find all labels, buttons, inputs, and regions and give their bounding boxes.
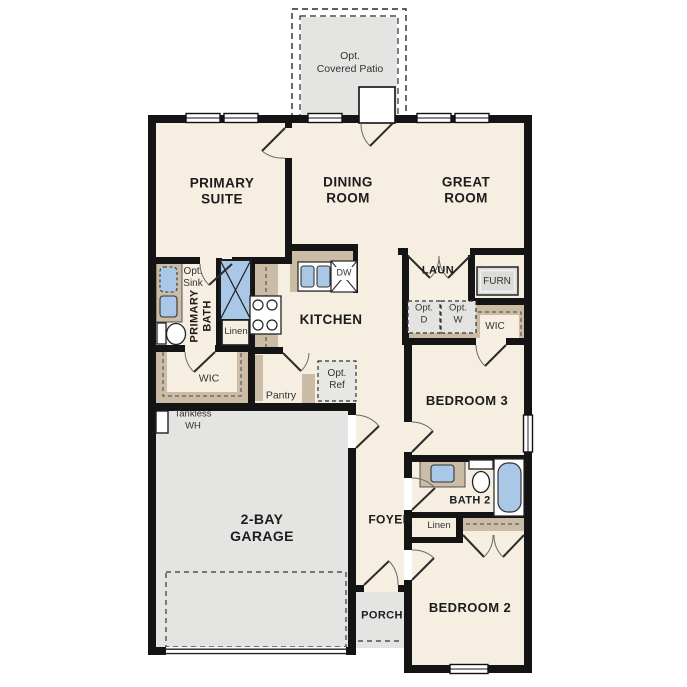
dishwasher xyxy=(331,261,357,292)
bath2-sink xyxy=(431,465,454,482)
bath2-tub xyxy=(494,459,524,516)
optional-dryer xyxy=(408,301,440,333)
floorplan-canvas: Opt. Covered Patio PRIMARY SUITE DINING … xyxy=(0,0,687,687)
tankless-water-heater xyxy=(156,411,168,433)
optional-refrigerator xyxy=(318,361,356,401)
primary-shower xyxy=(220,260,251,320)
furnace-box xyxy=(477,267,518,295)
patio-door-threshold xyxy=(359,87,395,123)
porch-area xyxy=(356,592,404,648)
optional-washer xyxy=(441,301,476,333)
primary-toilet xyxy=(157,323,186,345)
kitchen-sink xyxy=(298,262,331,291)
floorplan-drawing xyxy=(0,0,687,687)
primary-linen-closet xyxy=(222,320,249,345)
garage-door-opening xyxy=(166,647,346,655)
garage-area xyxy=(156,411,348,647)
stove xyxy=(250,296,281,334)
